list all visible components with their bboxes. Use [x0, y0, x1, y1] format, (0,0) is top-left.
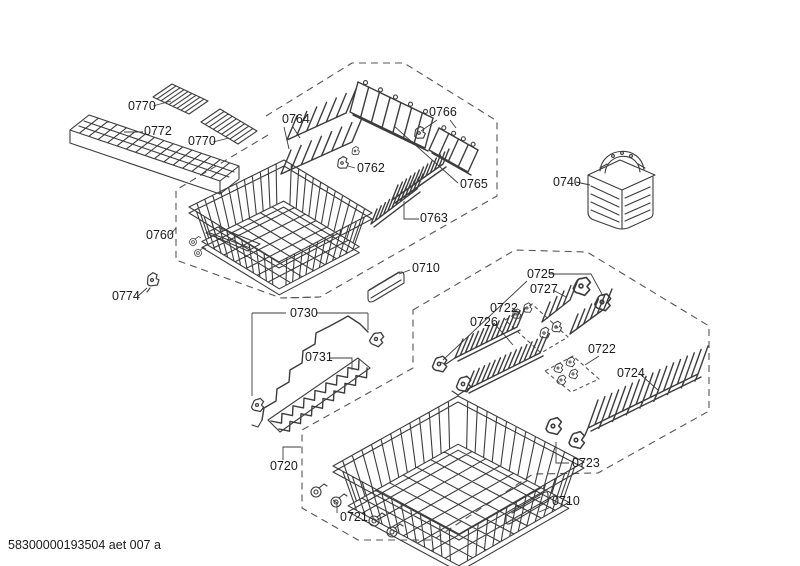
parts-artwork: [70, 81, 708, 566]
generated-artwork: [189, 81, 708, 566]
part-labels: 0770 0772 0770 0760 0774 0764 0762 0766 …: [112, 99, 645, 524]
part-label-0740: 0740: [553, 175, 581, 189]
part-label-0721: 0721: [340, 510, 368, 524]
clip-part: [569, 432, 584, 449]
drawing-number: 58300000193504 aet 007 a: [8, 538, 161, 552]
part-label-0724: 0724: [617, 366, 645, 380]
clip-part: [457, 376, 471, 392]
clip-part: [369, 331, 385, 347]
part-label-0766: 0766: [429, 105, 457, 119]
part-label-0762: 0762: [357, 161, 385, 175]
part-0774-clip: [145, 272, 161, 292]
part-label-0727: 0727: [530, 282, 558, 296]
clip-part: [252, 398, 264, 411]
zone-lower-group-outline: [302, 250, 709, 540]
part-0710-handle-middle: [368, 272, 404, 302]
part-label-0770-1: 0770: [128, 99, 156, 113]
wheel-part: [387, 524, 403, 537]
part-label-0710-bottom: 0710: [552, 494, 580, 508]
part-label-0720: 0720: [270, 459, 298, 473]
clip-part: [557, 375, 566, 385]
part-label-0722-1: 0722: [490, 301, 518, 315]
part-label-0723: 0723: [572, 456, 600, 470]
clip-part: [336, 156, 350, 170]
part-label-0764: 0764: [282, 112, 310, 126]
part-label-0726: 0726: [470, 315, 498, 329]
part-label-0731: 0731: [305, 350, 333, 364]
part-label-0774: 0774: [112, 289, 140, 303]
part-label-0760: 0760: [146, 228, 174, 242]
part-label-0710-middle: 0710: [412, 261, 440, 275]
parts-diagram: 0770 0772 0770 0760 0774 0764 0762 0766 …: [0, 0, 800, 566]
clip-part: [351, 146, 361, 156]
clip-part: [539, 327, 551, 339]
clip-part: [566, 357, 575, 367]
part-label-0722-2: 0722: [588, 342, 616, 356]
clip-part: [413, 126, 427, 140]
part-label-0763: 0763: [420, 211, 448, 225]
clip-part: [554, 363, 563, 373]
exploded-parts-diagram-page: 0770 0772 0770 0760 0774 0764 0762 0766 …: [0, 0, 800, 566]
leader-lines: [124, 101, 659, 513]
clip-part: [569, 369, 578, 379]
part-0740-cutlery-basket: [588, 151, 655, 229]
wheel-part: [311, 484, 327, 497]
wheel-part: [190, 236, 201, 245]
part-label-0765: 0765: [460, 177, 488, 191]
part-label-0770-2: 0770: [188, 134, 216, 148]
part-0770-insert-1: [153, 84, 208, 114]
part-label-0772: 0772: [144, 124, 172, 138]
part-label-0730: 0730: [290, 306, 318, 320]
part-label-0725: 0725: [527, 267, 555, 281]
clip-part: [546, 418, 561, 435]
